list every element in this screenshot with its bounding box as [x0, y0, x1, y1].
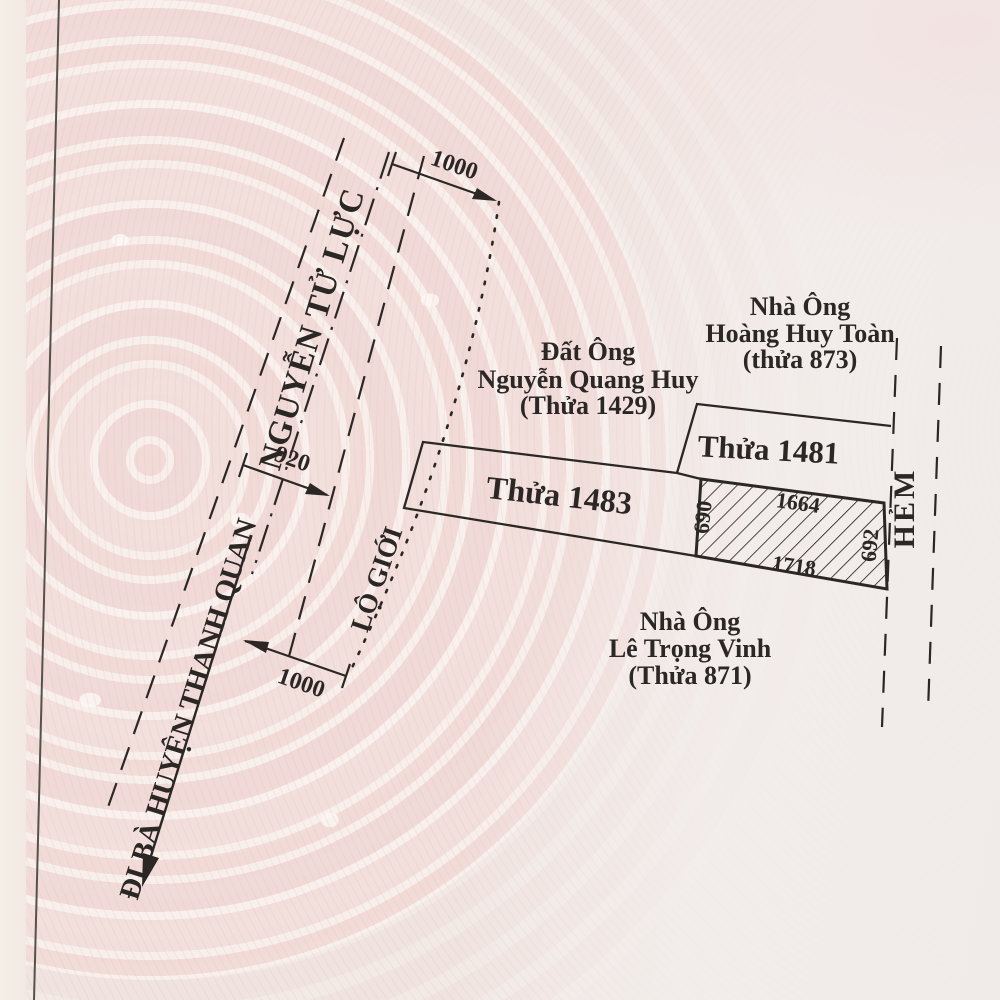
street-label-nguyen-tu-luc: NGUYỄN TỬ LỰC — [250, 183, 373, 474]
alley-label-hem: HẺM — [888, 468, 921, 549]
svg-text:Nhà Ông: Nhà Ông — [640, 607, 740, 636]
dim-value-plot-right: 692 — [856, 528, 884, 563]
dim-value-bottom-road-width: 1000 — [274, 663, 328, 703]
plot-label-1481: Thửa 1481 — [697, 428, 840, 470]
street-label-di-ba-huyen-thanh-quan: ĐI BÀ HUYỆN THANH QUAN — [112, 515, 263, 904]
dim-arrow-top-1000 — [472, 188, 497, 201]
neighbor-label-south: Nhà Ông Lê Trọng Vinh (Thửa 871) — [609, 607, 772, 690]
dim-value-plot-bottom: 1718 — [771, 550, 818, 581]
road-edge-dashed-west — [107, 138, 344, 810]
dim-arrow-bottom-1000 — [243, 640, 269, 653]
road-boundary-label-lo-gioi: LỘ GIỚI — [345, 523, 409, 636]
svg-text:Hoàng Huy Toàn: Hoàng Huy Toàn — [705, 319, 895, 348]
svg-text:(thửa 873): (thửa 873) — [743, 345, 858, 374]
svg-text:(Thửa 871): (Thửa 871) — [628, 661, 751, 690]
svg-text:(Thửa 1429): (Thửa 1429) — [520, 391, 656, 420]
page-border-line — [34, 0, 59, 1000]
svg-text:Lê Trọng Vinh: Lê Trọng Vinh — [609, 634, 772, 663]
cadastral-sketch: 1000 920 1000 NGUYỄN TỬ LỰC ĐI BÀ HUYỆN … — [0, 0, 1000, 1000]
alley-edge-dashed-east — [928, 346, 941, 711]
neighbor-label-north: Đất Ông Nguyễn Quang Huy (Thửa 1429) — [477, 337, 698, 420]
plot-label-1483: Thửa 1483 — [485, 469, 634, 521]
svg-text:Nhà Ông: Nhà Ông — [750, 292, 850, 321]
certificate-page: 1000 920 1000 NGUYỄN TỬ LỰC ĐI BÀ HUYỆN … — [0, 0, 1000, 1000]
svg-text:Đất Ông: Đất Ông — [541, 337, 636, 366]
dim-arrow-920 — [305, 483, 330, 496]
svg-text:Nguyễn Quang Huy: Nguyễn Quang Huy — [477, 365, 698, 394]
neighbor-label-northeast: Nhà Ông Hoàng Huy Toàn (thửa 873) — [705, 292, 895, 374]
dim-value-plot-left: 690 — [688, 499, 716, 534]
